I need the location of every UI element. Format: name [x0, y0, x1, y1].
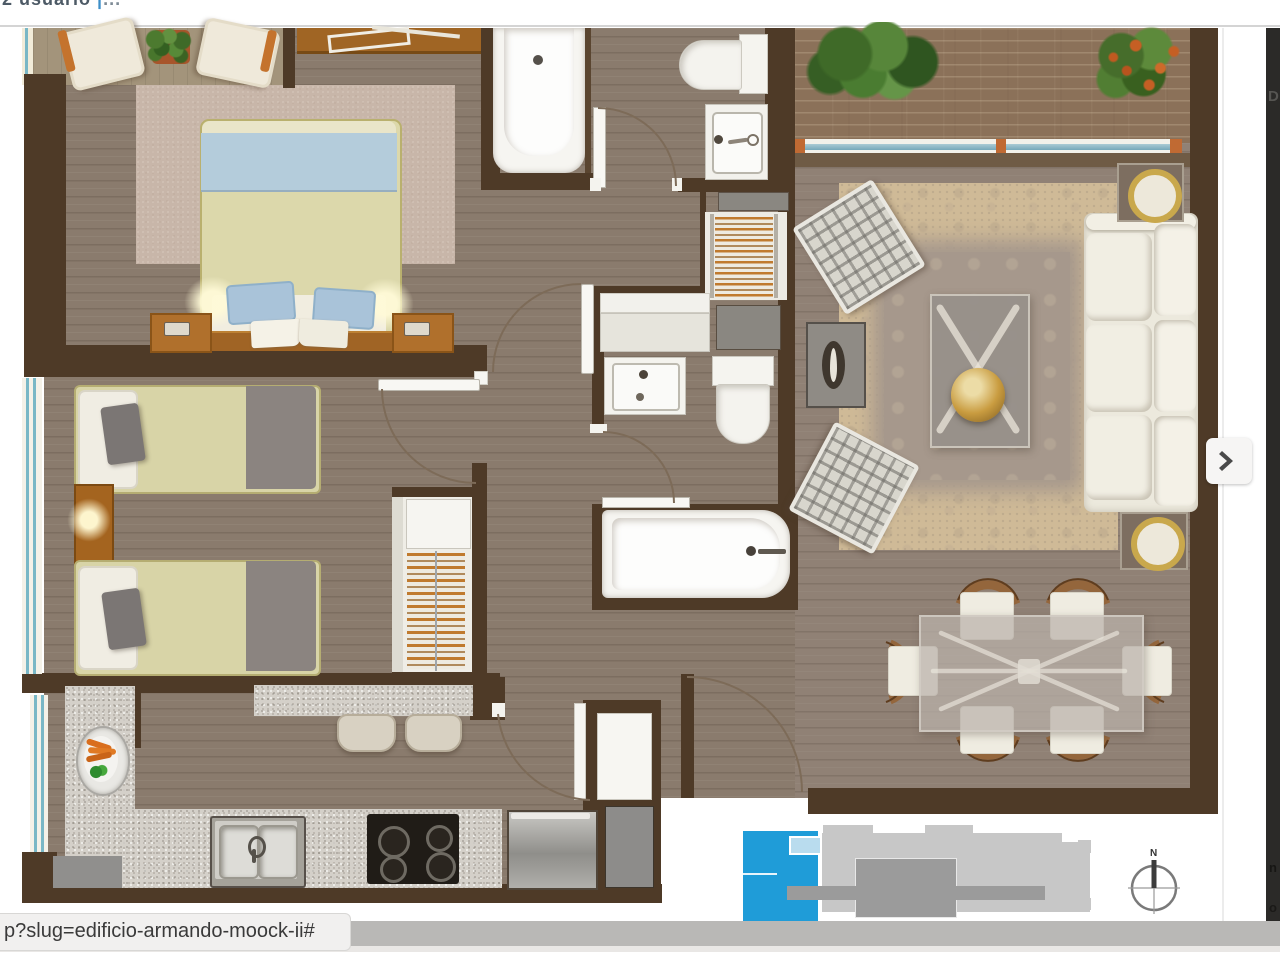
svg-text:N: N — [1150, 848, 1157, 859]
